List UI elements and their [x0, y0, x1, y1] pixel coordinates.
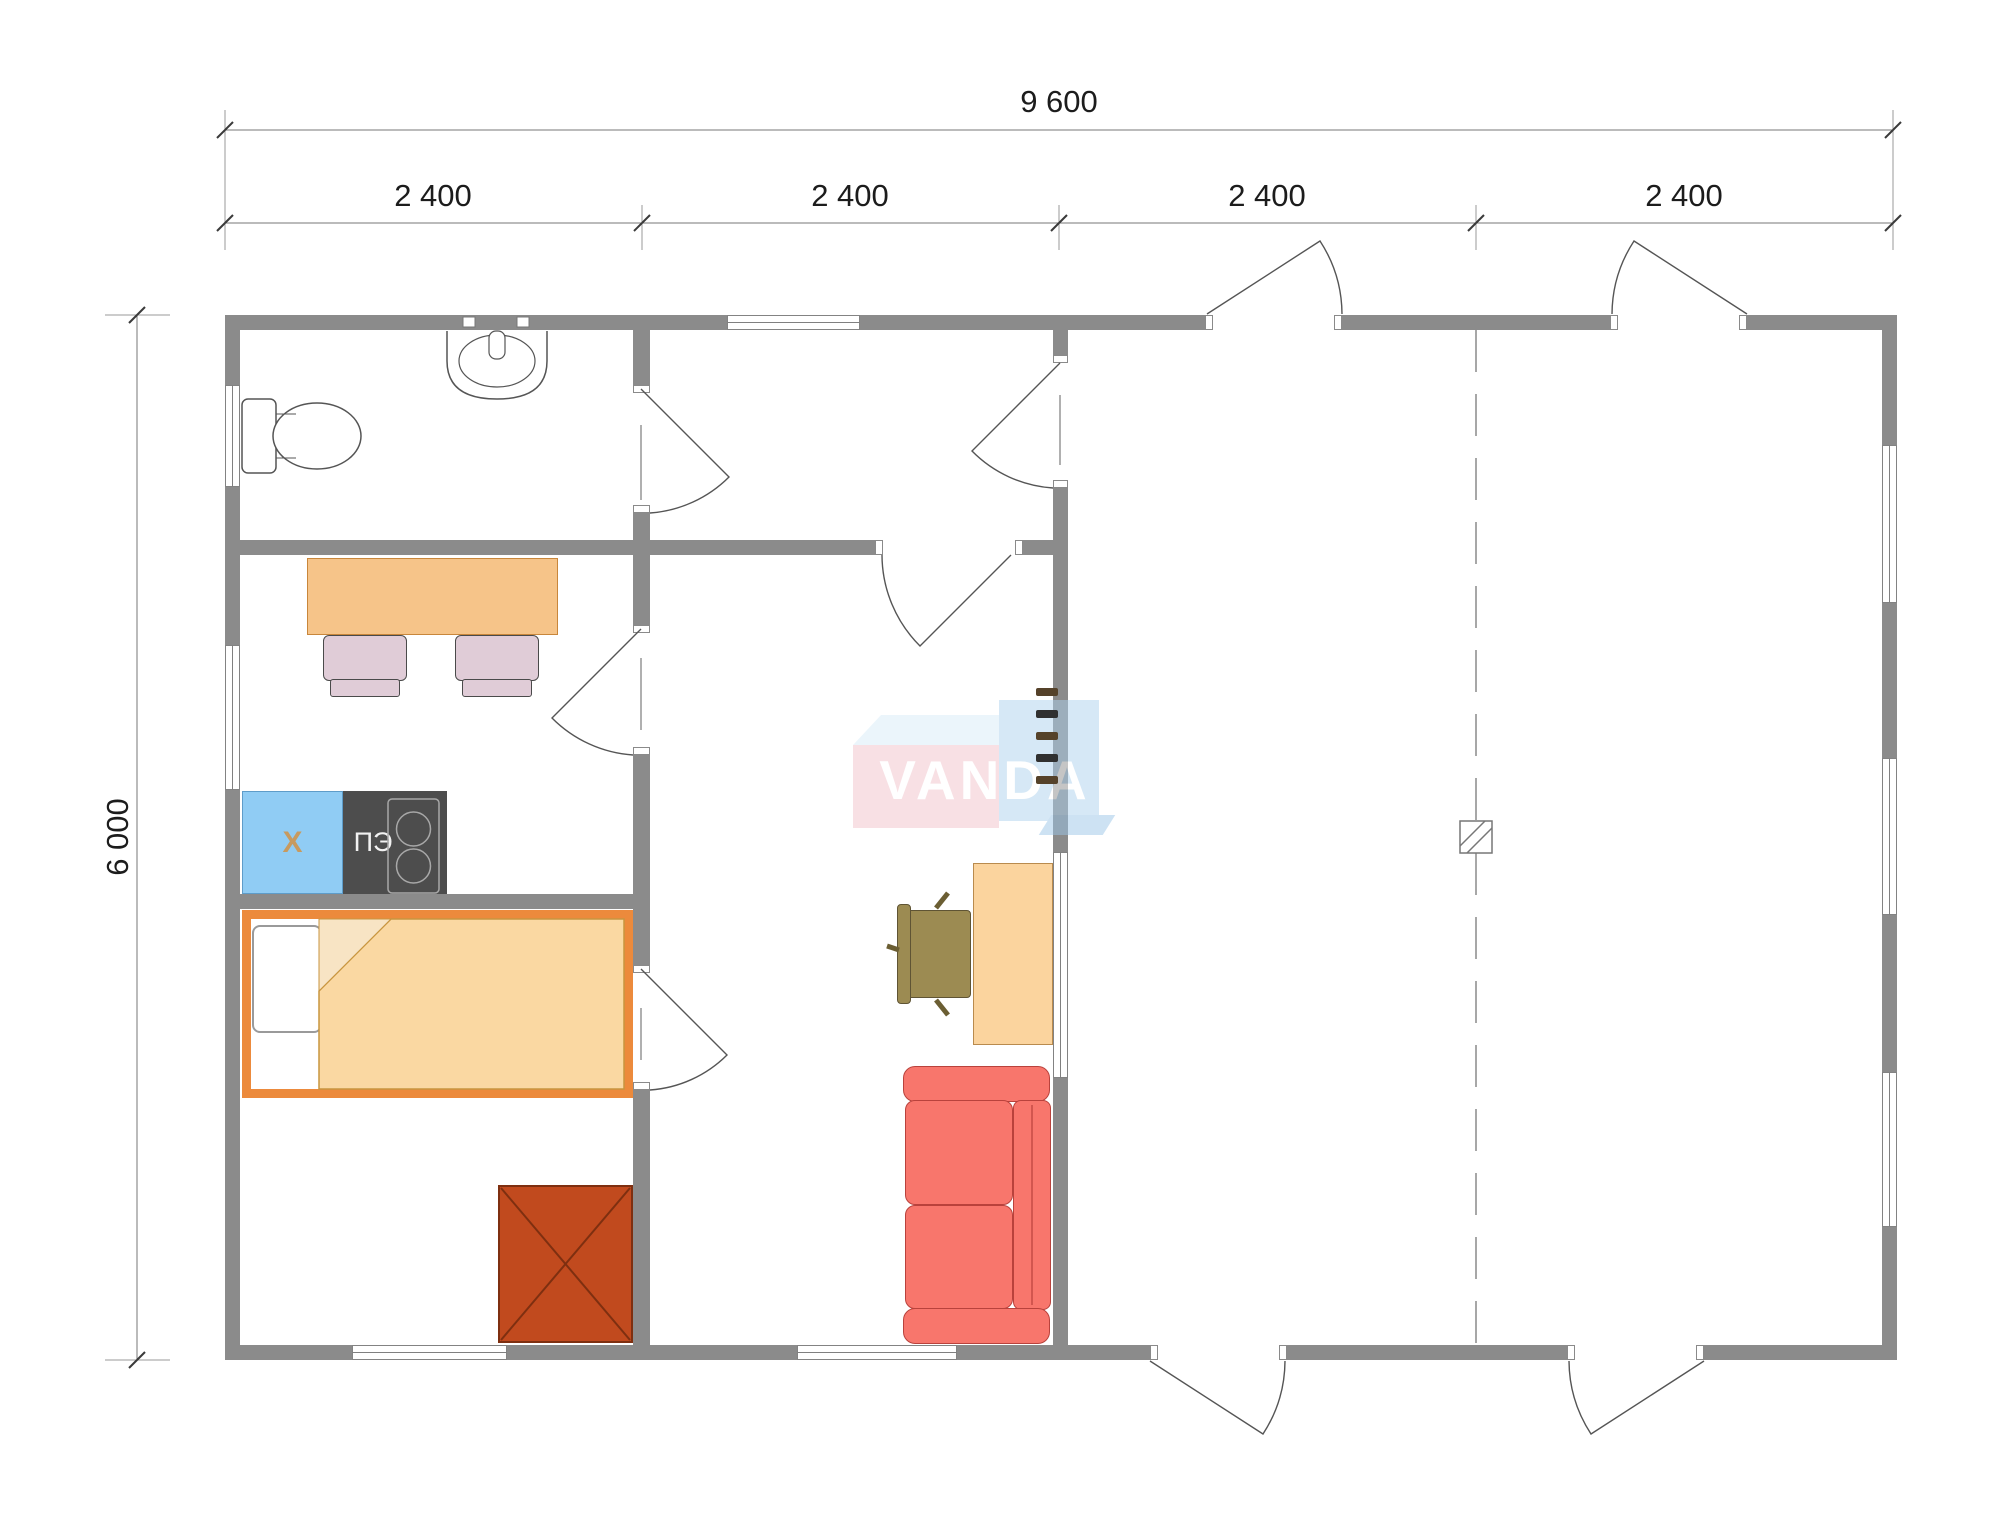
dim-segment-1: 2 400	[358, 178, 508, 214]
door-middle-room	[972, 363, 1060, 488]
door-swing-arcs	[552, 241, 1747, 1434]
ridge-dashed-line	[1460, 330, 1492, 1345]
watermark-text: VANDA	[859, 745, 1111, 815]
dim-total-width: 9 600	[959, 84, 1159, 120]
dim-height: 6 000	[103, 767, 133, 907]
sink-icon	[447, 317, 547, 399]
floor-plan-canvas: Х ПЭ	[0, 0, 2000, 1524]
dim-segment-3: 2 400	[1192, 178, 1342, 214]
ladder-rung	[1036, 710, 1058, 718]
dim-segment-4: 2 400	[1609, 178, 1759, 214]
stove-burners	[388, 799, 439, 893]
bed-blanket	[319, 919, 624, 1089]
door-exterior-bottom-1	[1150, 1361, 1285, 1434]
door-exterior-top-2	[1612, 241, 1747, 314]
toilet-icon	[242, 399, 361, 473]
ladder-rung	[1036, 688, 1058, 696]
door-exterior-bottom-2	[1569, 1361, 1704, 1434]
watermark-blue-tail	[1039, 815, 1115, 835]
door-bathroom	[641, 389, 729, 513]
door-hall	[882, 555, 1011, 646]
ladder-rung	[1036, 776, 1058, 784]
vanda-watermark: VANDA	[845, 693, 1125, 843]
door-exterior-top-1	[1207, 241, 1342, 314]
ladder-rung	[1036, 754, 1058, 762]
wardrobe-cross	[501, 1188, 630, 1340]
ladder-rung	[1036, 732, 1058, 740]
door-kitchen	[552, 629, 641, 755]
dim-segment-2: 2 400	[775, 178, 925, 214]
door-bedroom	[641, 969, 727, 1090]
chimney-symbol	[1460, 821, 1492, 853]
office-chair-arms	[887, 893, 948, 1015]
